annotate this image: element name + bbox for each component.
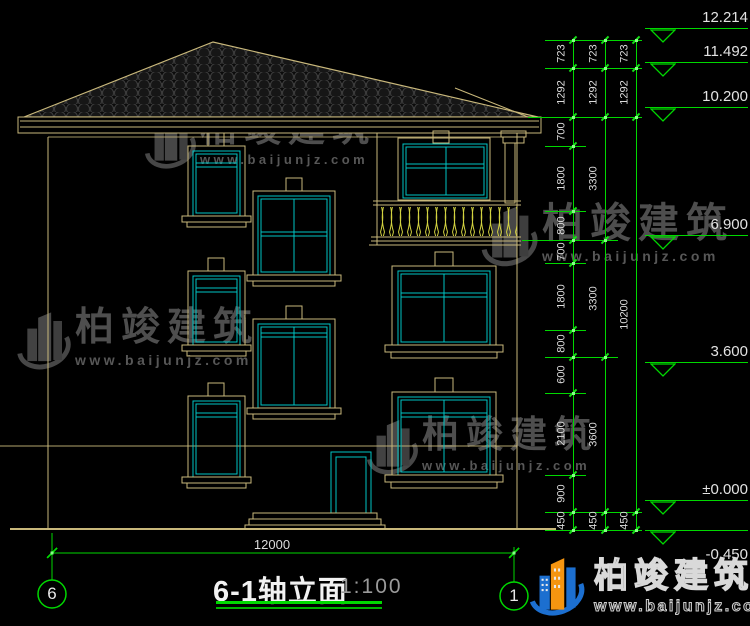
dim-node [572, 329, 575, 332]
elevation-value: 6.900 [645, 216, 748, 233]
dim-node [604, 356, 607, 359]
dim-node [572, 356, 575, 359]
dim-node [572, 67, 575, 70]
dim-node [635, 39, 638, 42]
dim-node [572, 210, 575, 213]
elevation-value: 11.492 [645, 43, 748, 60]
dim-node [572, 239, 575, 242]
dimension-value: 1292 [620, 57, 631, 127]
elevation-triangle [650, 501, 676, 520]
dim-node [635, 116, 638, 119]
dim-node [572, 529, 575, 532]
dimensions-layer: 7231292700180080070018008006002100900450… [0, 0, 750, 626]
dim-node [635, 529, 638, 532]
dim-node [572, 392, 575, 395]
dim-node [604, 116, 607, 119]
elevation-value: 10.200 [645, 88, 748, 105]
dim-node [604, 511, 607, 514]
dim-node [604, 529, 607, 532]
dimension-value: 3600 [589, 399, 600, 469]
dim-node [572, 145, 575, 148]
span-dimension-label: 12000 [227, 537, 317, 552]
title-underline [216, 601, 382, 604]
dim-node [604, 67, 607, 70]
dimension-value: 1292 [589, 57, 600, 127]
brand-logo: 柏竣建筑 www.baijunjz.com [522, 554, 750, 620]
dimension-value: 450 [620, 486, 631, 556]
elevation-triangle [650, 363, 676, 382]
dimension-value: 3300 [589, 263, 600, 333]
dim-node [572, 116, 575, 119]
brand-logo-name: 柏竣建筑 [594, 559, 750, 593]
brand-logo-site: www.baijunjz.com [594, 598, 750, 616]
elevation-value: 3.600 [645, 343, 748, 360]
dimension-value: 10200 [620, 279, 631, 349]
dim-node [572, 39, 575, 42]
elevation-triangle [650, 108, 676, 127]
dim-node [604, 39, 607, 42]
elevation-value: 12.214 [645, 9, 748, 26]
dimension-value: 450 [557, 486, 568, 556]
dim-node [572, 474, 575, 477]
elevation-triangle [650, 63, 676, 82]
axis-label-left: 6 [39, 584, 65, 604]
elevation-triangle [650, 236, 676, 255]
dim-node [635, 67, 638, 70]
brand-logo-icon [522, 554, 590, 620]
title-underline-2 [216, 607, 382, 609]
dimension-value: 450 [589, 486, 600, 556]
dimension-value: 3300 [589, 143, 600, 213]
drawing-scale: 1:100 [340, 575, 403, 599]
dim-node [604, 239, 607, 242]
dim-node [635, 511, 638, 514]
dim-node [572, 511, 575, 514]
elevation-value: ±0.000 [645, 481, 748, 498]
dim-node [572, 262, 575, 265]
cad-elevation-canvas: 柏竣建筑www.baijunjz.com柏竣建筑www.baijunjz.com… [0, 0, 750, 626]
